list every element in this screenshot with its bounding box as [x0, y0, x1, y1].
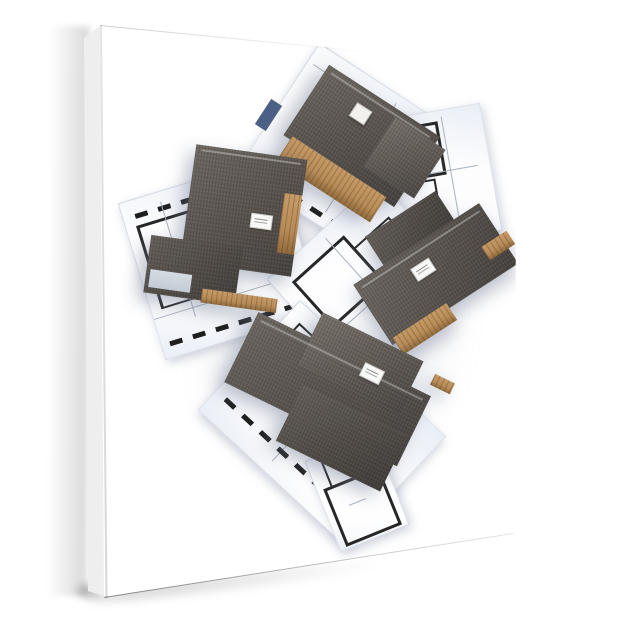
timber-trim: [430, 374, 455, 394]
roof-label-tag: [249, 213, 273, 231]
product-photo: [0, 0, 626, 626]
canvas-left-shadow: [47, 26, 90, 596]
